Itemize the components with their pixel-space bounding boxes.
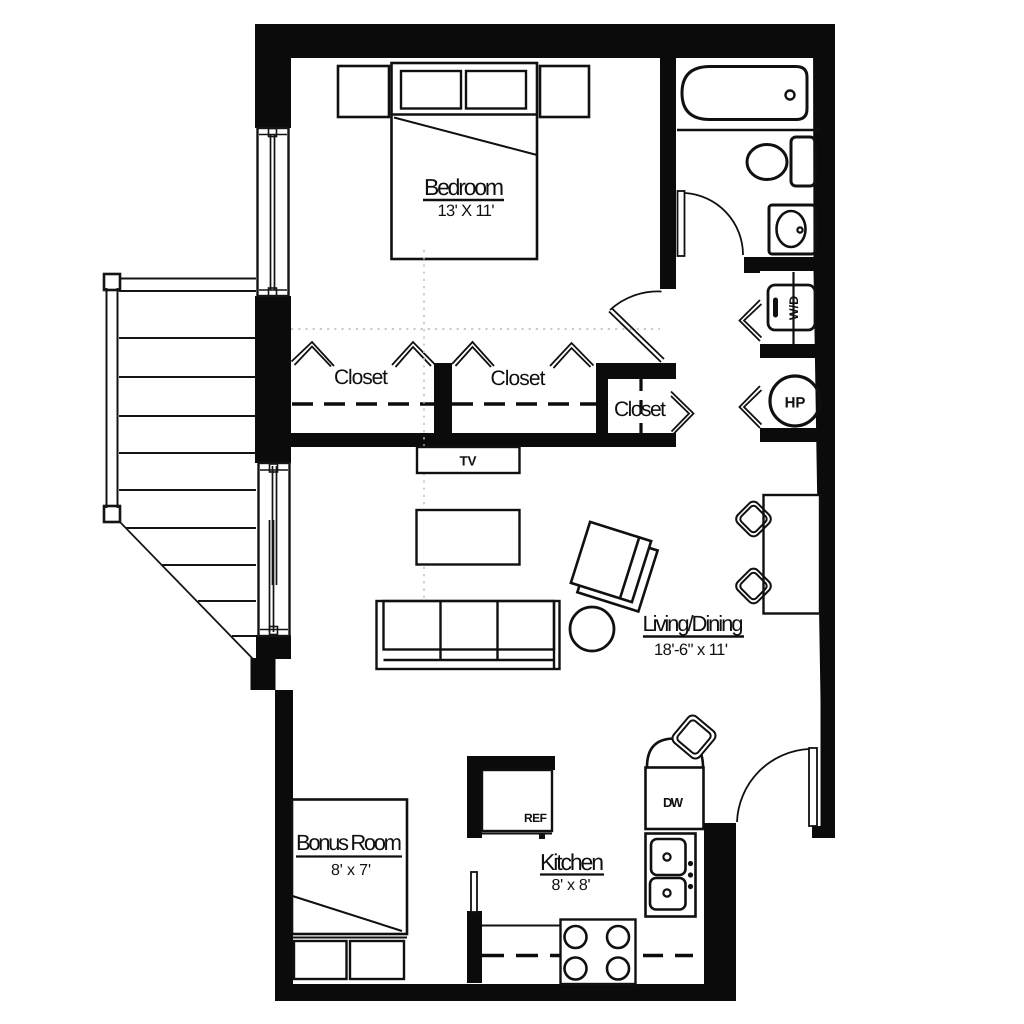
svg-text:Kitchen: Kitchen (540, 849, 604, 875)
svg-text:Bedroom: Bedroom (424, 174, 504, 200)
svg-text:REF: REF (524, 811, 547, 825)
svg-text:8' x 7': 8' x 7' (331, 862, 371, 879)
svg-text:Closet: Closet (491, 367, 546, 390)
svg-text:18'-6" x 11': 18'-6" x 11' (654, 641, 728, 659)
svg-text:Closet: Closet (334, 366, 388, 389)
svg-text:DW: DW (663, 795, 684, 810)
svg-text:13' X 11': 13' X 11' (438, 202, 495, 220)
svg-text:TV: TV (460, 454, 477, 469)
svg-text:8' x 8': 8' x 8' (552, 877, 591, 894)
svg-text:Closet: Closet (614, 398, 666, 421)
svg-text:Living/Dining: Living/Dining (643, 611, 744, 636)
svg-text:W/D: W/D (787, 296, 801, 320)
svg-text:HP: HP (785, 395, 806, 412)
svg-text:Bonus Room: Bonus Room (296, 830, 402, 855)
